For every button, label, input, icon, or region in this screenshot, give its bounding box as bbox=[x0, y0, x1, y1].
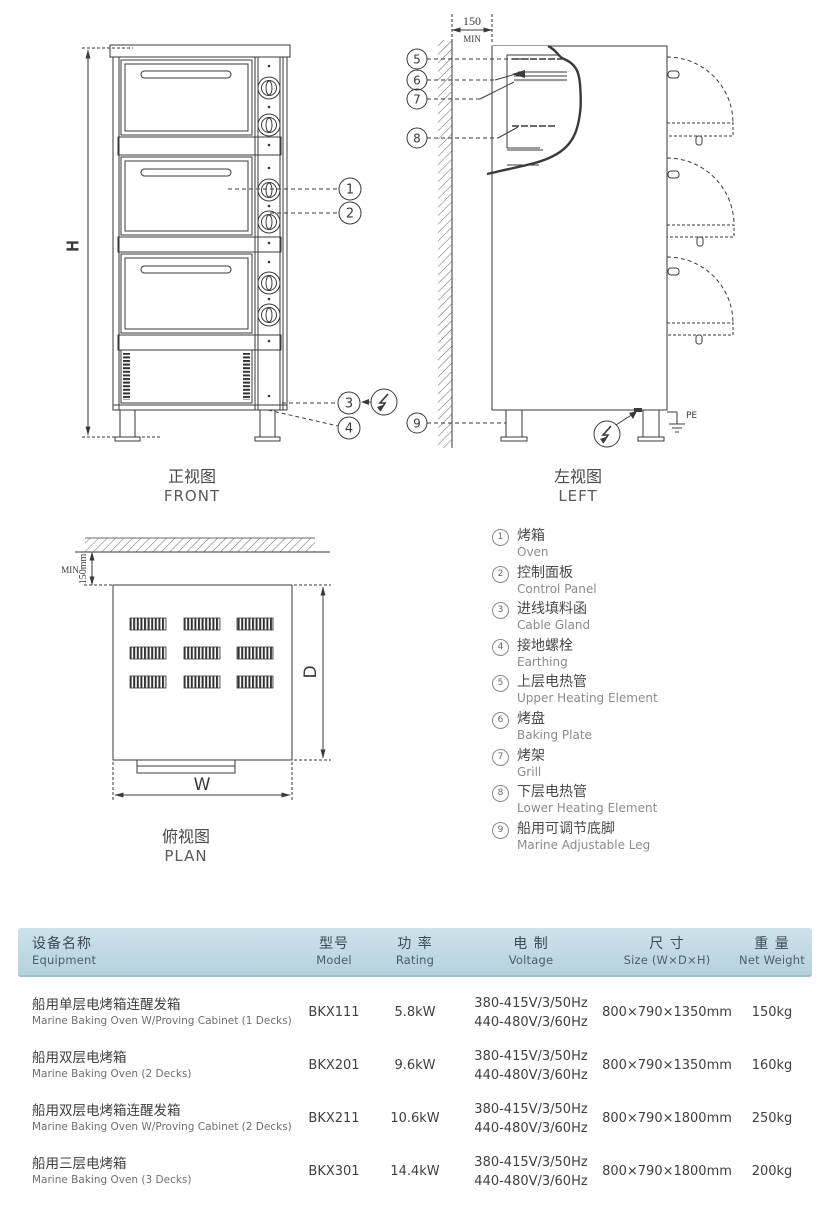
legend-number: 5 bbox=[492, 675, 509, 692]
legend-item-control-panel: 2 控制面板 Control Panel bbox=[492, 565, 827, 597]
voltage-line-1: 380-415V/3/50Hz bbox=[474, 1049, 587, 1064]
plan-label-en: PLAN bbox=[164, 847, 207, 865]
cell-rating: 10.6kW bbox=[370, 1111, 460, 1126]
wall-hatching bbox=[438, 40, 452, 448]
left-label-zh: 左视图 bbox=[554, 467, 602, 486]
oven-cabinet bbox=[110, 45, 290, 410]
parts-legend: 1 烤箱 Oven 2 控制面板 Control Panel 3 进线填料函 C… bbox=[492, 528, 827, 857]
legend-item-upper-heating-element: 5 上层电热管 Upper Heating Element bbox=[492, 674, 827, 706]
cell-model: BKX201 bbox=[298, 1058, 370, 1073]
voltage-line-1: 380-415V/3/50Hz bbox=[474, 996, 587, 1011]
cell-voltage: 380-415V/3/50Hz440-480V/3/60Hz bbox=[460, 994, 602, 1032]
plan-body bbox=[113, 585, 292, 760]
cable-gland-mark bbox=[634, 408, 642, 412]
front-label-en: FRONT bbox=[164, 487, 220, 505]
plan-vent-slots bbox=[130, 618, 273, 688]
equipment-en: Marine Baking Oven (3 Decks) bbox=[32, 1173, 298, 1187]
header-size-zh: 尺 寸 bbox=[602, 936, 732, 953]
voltage-line-1: 380-415V/3/50Hz bbox=[474, 1155, 587, 1170]
cutaway-detail bbox=[487, 46, 581, 410]
cell-equipment: 船用双层电烤箱 Marine Baking Oven (2 Decks) bbox=[18, 1050, 298, 1081]
open-door-handle bbox=[697, 237, 703, 246]
equipment-en: Marine Baking Oven W/Proving Cabinet (1 … bbox=[32, 1014, 298, 1028]
legend-number: 1 bbox=[492, 529, 509, 546]
callout-4-number: 4 bbox=[345, 422, 353, 437]
cell-voltage: 380-415V/3/50Hz440-480V/3/60Hz bbox=[460, 1100, 602, 1138]
door-swing-set-2 bbox=[667, 158, 734, 246]
header-model-en: Model bbox=[298, 953, 370, 967]
open-door bbox=[667, 323, 733, 335]
front-view: H bbox=[64, 45, 397, 505]
legend-item-baking-plate: 6 烤盘 Baking Plate bbox=[492, 711, 827, 743]
voltage-line-2: 440-480V/3/60Hz bbox=[474, 1015, 587, 1030]
door-handle bbox=[141, 169, 231, 176]
plan-view: 150mm MIN D bbox=[61, 538, 331, 865]
header-voltage-en: Voltage bbox=[460, 953, 602, 967]
cell-model: BKX301 bbox=[298, 1164, 370, 1179]
cell-equipment: 船用双层电烤箱连醒发箱 Marine Baking Oven W/Proving… bbox=[18, 1103, 298, 1134]
legend-number: 9 bbox=[492, 822, 509, 839]
cell-voltage: 380-415V/3/50Hz440-480V/3/60Hz bbox=[460, 1153, 602, 1191]
front-label-zh: 正视图 bbox=[168, 467, 216, 486]
control-panel-knobs bbox=[258, 65, 280, 398]
spec-table-body: 船用单层电烤箱连醒发箱 Marine Baking Oven W/Proving… bbox=[18, 986, 812, 1198]
legend-label-en: Grill bbox=[517, 765, 545, 780]
cell-model: BKX111 bbox=[298, 1005, 370, 1020]
cell-equipment: 船用单层电烤箱连醒发箱 Marine Baking Oven W/Proving… bbox=[18, 997, 298, 1028]
legend-item-cable-gland: 3 进线填料函 Cable Gland bbox=[492, 601, 827, 633]
legend-item-grill: 7 烤架 Grill bbox=[492, 748, 827, 780]
equipment-zh: 船用三层电烤箱 bbox=[32, 1156, 298, 1173]
left-clearance-dimension: 150 MIN bbox=[452, 14, 492, 44]
legend-number: 6 bbox=[492, 712, 509, 729]
control-knob bbox=[258, 304, 280, 326]
table-row: 船用双层电烤箱 Marine Baking Oven (2 Decks) BKX… bbox=[18, 1039, 812, 1092]
cell-size: 800×790×1800mm bbox=[602, 1111, 732, 1126]
legend-label-zh: 船用可调节底脚 bbox=[517, 821, 650, 838]
plan-clearance-dimension: 150mm MIN bbox=[61, 552, 160, 585]
cell-size: 800×790×1800mm bbox=[602, 1164, 732, 1179]
cell-rating: 5.8kW bbox=[370, 1005, 460, 1020]
legend-label-en: Oven bbox=[517, 545, 549, 560]
legend-label-en: Baking Plate bbox=[517, 728, 592, 743]
dim-w-label: W bbox=[194, 775, 211, 795]
header-rating-en: Rating bbox=[370, 953, 460, 967]
equipment-zh: 船用双层电烤箱连醒发箱 bbox=[32, 1103, 298, 1120]
legend-item-marine-adjustable-leg: 9 船用可调节底脚 Marine Adjustable Leg bbox=[492, 821, 827, 853]
callout-3-number: 3 bbox=[345, 397, 353, 412]
dim-150mm-label: 150mm bbox=[78, 554, 89, 585]
header-voltage: 电 制 Voltage bbox=[460, 936, 602, 967]
header-equipment: 设备名称 Equipment bbox=[18, 936, 298, 967]
dim-h-label: H bbox=[64, 240, 82, 251]
open-door bbox=[667, 123, 733, 136]
door-swing-arc bbox=[667, 158, 734, 225]
header-weight-en: Net Weight bbox=[732, 953, 812, 967]
legend-item-oven: 1 烤箱 Oven bbox=[492, 528, 827, 560]
header-weight: 重 量 Net Weight bbox=[732, 936, 812, 967]
legend-label-en: Cable Gland bbox=[517, 618, 590, 633]
pe-ground-symbol: PE bbox=[667, 411, 697, 432]
plan-handle bbox=[137, 760, 235, 773]
legend-number: 7 bbox=[492, 749, 509, 766]
legend-label-zh: 上层电热管 bbox=[517, 674, 658, 691]
left-label-en: LEFT bbox=[558, 487, 597, 505]
legend-item-lower-heating-element: 8 下层电热管 Lower Heating Element bbox=[492, 784, 827, 816]
oven-door-deck1 bbox=[121, 60, 252, 135]
legend-number: 3 bbox=[492, 602, 509, 619]
table-row: 船用三层电烤箱 Marine Baking Oven (3 Decks) BKX… bbox=[18, 1145, 812, 1198]
header-size-en: Size (W×D×H) bbox=[602, 953, 732, 967]
header-rating: 功 率 Rating bbox=[370, 936, 460, 967]
high-voltage-icon bbox=[594, 408, 642, 447]
open-door bbox=[667, 225, 734, 237]
door-handle bbox=[141, 71, 231, 78]
callout-2-number: 2 bbox=[346, 207, 354, 222]
legend-item-earthing: 4 接地螺栓 Earthing bbox=[492, 638, 827, 670]
legend-number: 2 bbox=[492, 566, 509, 583]
cell-size: 800×790×1350mm bbox=[602, 1005, 732, 1020]
plan-depth-dimension: D bbox=[294, 585, 331, 760]
legend-label-zh: 控制面板 bbox=[517, 565, 597, 582]
cell-rating: 14.4kW bbox=[370, 1164, 460, 1179]
plan-label-zh: 俯视图 bbox=[162, 827, 210, 846]
door-swing-set-3 bbox=[667, 257, 733, 344]
legend-label-en: Upper Heating Element bbox=[517, 691, 658, 706]
callout-6-number: 6 bbox=[413, 74, 421, 88]
legend-label-zh: 烤盘 bbox=[517, 711, 592, 728]
cell-weight: 250kg bbox=[732, 1111, 812, 1126]
vent-slots-right bbox=[243, 353, 250, 400]
cell-model: BKX211 bbox=[298, 1111, 370, 1126]
high-voltage-icon bbox=[361, 389, 397, 415]
control-knob bbox=[258, 77, 280, 99]
spec-table: 设备名称 Equipment 型号 Model 功 率 Rating 电 制 V… bbox=[18, 928, 812, 1198]
control-knob bbox=[258, 114, 280, 136]
oven-door-deck2 bbox=[121, 157, 252, 235]
control-knob bbox=[258, 179, 280, 201]
door-handle-stub bbox=[668, 71, 679, 78]
spec-sheet-page: H bbox=[0, 0, 830, 1215]
legend-label-zh: 下层电热管 bbox=[517, 784, 657, 801]
header-model-zh: 型号 bbox=[298, 936, 370, 953]
cell-size: 800×790×1350mm bbox=[602, 1058, 732, 1073]
legend-label-zh: 接地螺栓 bbox=[517, 638, 573, 655]
voltage-line-2: 440-480V/3/60Hz bbox=[474, 1068, 587, 1083]
dim-min-label: MIN bbox=[61, 565, 79, 575]
spec-table-header: 设备名称 Equipment 型号 Model 功 率 Rating 电 制 V… bbox=[18, 928, 812, 977]
legend-number: 4 bbox=[492, 639, 509, 656]
equipment-zh: 船用双层电烤箱 bbox=[32, 1050, 298, 1067]
bottom-compartment bbox=[113, 350, 287, 405]
header-size: 尺 寸 Size (W×D×H) bbox=[602, 936, 732, 967]
wall-hatching bbox=[75, 538, 330, 552]
header-voltage-zh: 电 制 bbox=[460, 936, 602, 953]
callout-1-number: 1 bbox=[346, 183, 354, 198]
voltage-line-2: 440-480V/3/60Hz bbox=[474, 1174, 587, 1189]
left-view: 150 MIN bbox=[407, 14, 734, 505]
cell-rating: 9.6kW bbox=[370, 1058, 460, 1073]
door-swing-arc bbox=[667, 57, 733, 123]
control-knob bbox=[258, 211, 280, 233]
dim-150-label: 150 bbox=[463, 14, 481, 28]
open-door-handle bbox=[696, 136, 702, 145]
oven-door-deck3 bbox=[121, 254, 252, 333]
door-handle bbox=[141, 266, 231, 273]
voltage-line-2: 440-480V/3/60Hz bbox=[474, 1121, 587, 1136]
legend-label-en: Marine Adjustable Leg bbox=[517, 838, 650, 853]
equipment-en: Marine Baking Oven W/Proving Cabinet (2 … bbox=[32, 1120, 298, 1134]
door-handle-stub bbox=[668, 268, 679, 275]
cell-weight: 150kg bbox=[732, 1005, 812, 1020]
control-knob bbox=[258, 272, 280, 294]
equipment-en: Marine Baking Oven (2 Decks) bbox=[32, 1067, 298, 1081]
open-door-handle bbox=[696, 335, 702, 344]
front-legs bbox=[115, 410, 280, 441]
vent-slots-left bbox=[123, 353, 130, 400]
dim-d-label: D bbox=[301, 665, 321, 678]
cell-weight: 160kg bbox=[732, 1058, 812, 1073]
voltage-line-1: 380-415V/3/50Hz bbox=[474, 1102, 587, 1117]
callout-9-number: 9 bbox=[413, 417, 421, 431]
door-swing-set-1 bbox=[667, 57, 733, 145]
deck-separator bbox=[118, 137, 281, 155]
cell-equipment: 船用三层电烤箱 Marine Baking Oven (3 Decks) bbox=[18, 1156, 298, 1187]
pe-label: PE bbox=[686, 411, 697, 421]
dim-min-label: MIN bbox=[463, 34, 481, 44]
legend-label-zh: 烤架 bbox=[517, 748, 545, 765]
door-handle-stub bbox=[668, 171, 679, 178]
header-rating-zh: 功 率 bbox=[370, 936, 460, 953]
cell-voltage: 380-415V/3/50Hz440-480V/3/60Hz bbox=[460, 1047, 602, 1085]
header-model: 型号 Model bbox=[298, 936, 370, 967]
table-row: 船用单层电烤箱连醒发箱 Marine Baking Oven W/Proving… bbox=[18, 986, 812, 1039]
cell-weight: 200kg bbox=[732, 1164, 812, 1179]
header-equipment-en: Equipment bbox=[32, 953, 298, 967]
door-swing-arc bbox=[667, 257, 733, 323]
equipment-zh: 船用单层电烤箱连醒发箱 bbox=[32, 997, 298, 1014]
header-weight-zh: 重 量 bbox=[732, 936, 812, 953]
legend-label-zh: 烤箱 bbox=[517, 528, 549, 545]
legend-label-en: Control Panel bbox=[517, 582, 597, 597]
legend-label-en: Earthing bbox=[517, 655, 573, 670]
legend-number: 8 bbox=[492, 785, 509, 802]
indicator-dots bbox=[268, 65, 271, 398]
deck-separator bbox=[118, 237, 281, 252]
left-legs bbox=[501, 410, 664, 441]
table-row: 船用双层电烤箱连醒发箱 Marine Baking Oven W/Proving… bbox=[18, 1092, 812, 1145]
callout-7-number: 7 bbox=[413, 93, 421, 107]
callout-5-number: 5 bbox=[413, 53, 421, 67]
plan-width-dimension: W bbox=[113, 762, 292, 801]
deck-separator bbox=[118, 335, 281, 350]
header-equipment-zh: 设备名称 bbox=[32, 936, 298, 953]
legend-label-en: Lower Heating Element bbox=[517, 801, 657, 816]
legend-label-zh: 进线填料函 bbox=[517, 601, 590, 618]
callout-8-number: 8 bbox=[413, 132, 421, 146]
